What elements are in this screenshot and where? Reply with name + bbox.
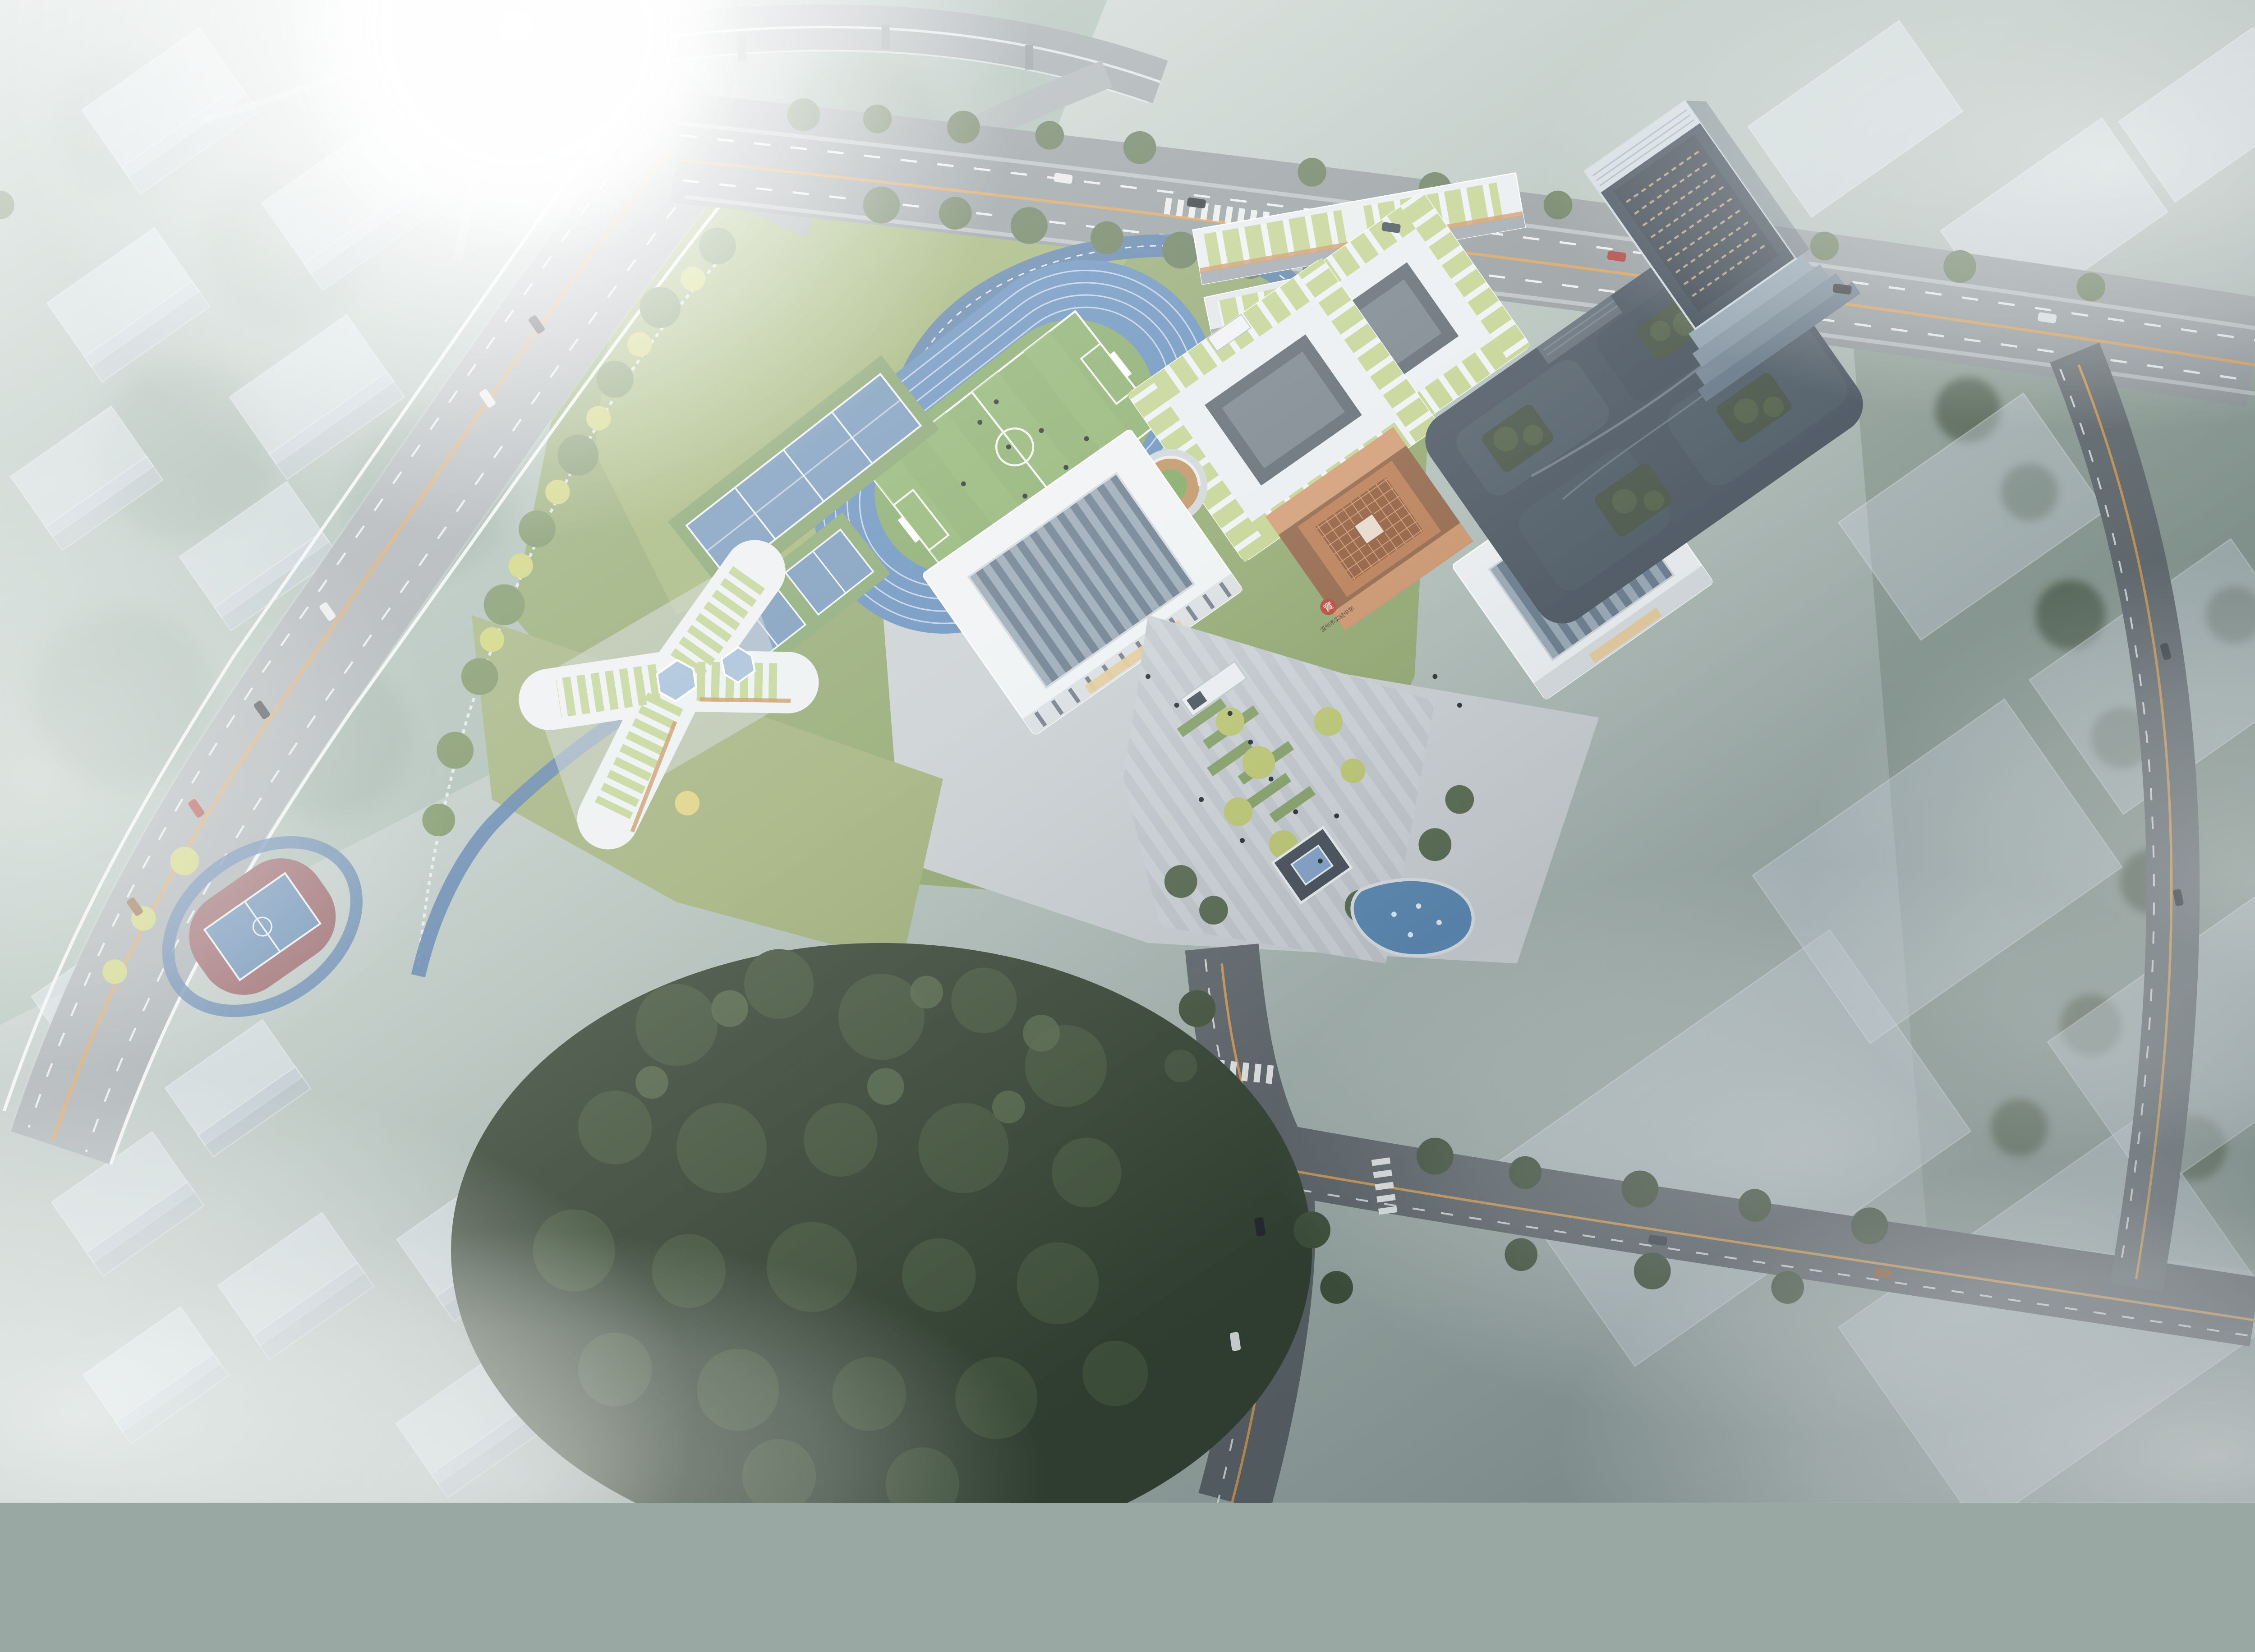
aerial-rendering: 實 温州市实验中学 bbox=[0, 0, 2255, 1503]
rendering-stage: 實 温州市实验中学 bbox=[0, 0, 2255, 1503]
